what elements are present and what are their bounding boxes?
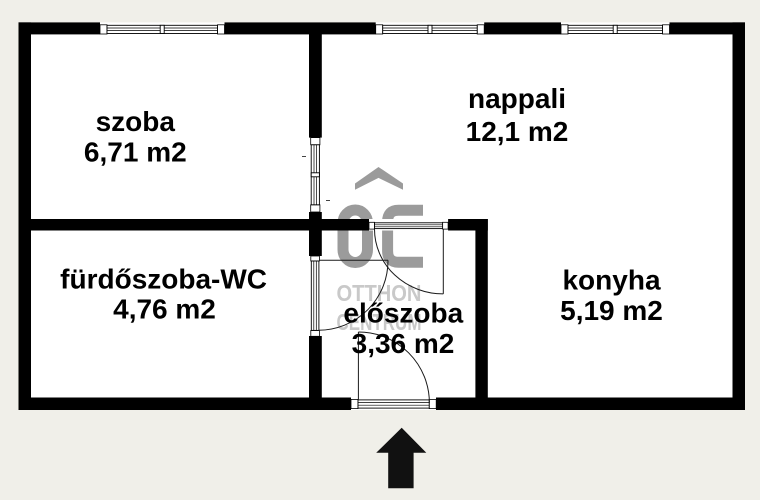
svg-text:5,19 m2: 5,19 m2 (560, 295, 663, 326)
svg-text:szoba: szoba (96, 106, 176, 137)
svg-text:konyha: konyha (562, 265, 660, 296)
svg-text:fürdőszoba-WC: fürdőszoba-WC (60, 263, 267, 294)
svg-text:nappali: nappali (468, 83, 566, 114)
svg-text:12,1 m2: 12,1 m2 (466, 116, 569, 147)
svg-text:előszoba: előszoba (343, 298, 463, 329)
svg-text:3,36 m2: 3,36 m2 (352, 328, 455, 359)
svg-text:4,76 m2: 4,76 m2 (113, 293, 216, 324)
svg-text:6,71 m2: 6,71 m2 (84, 137, 187, 168)
